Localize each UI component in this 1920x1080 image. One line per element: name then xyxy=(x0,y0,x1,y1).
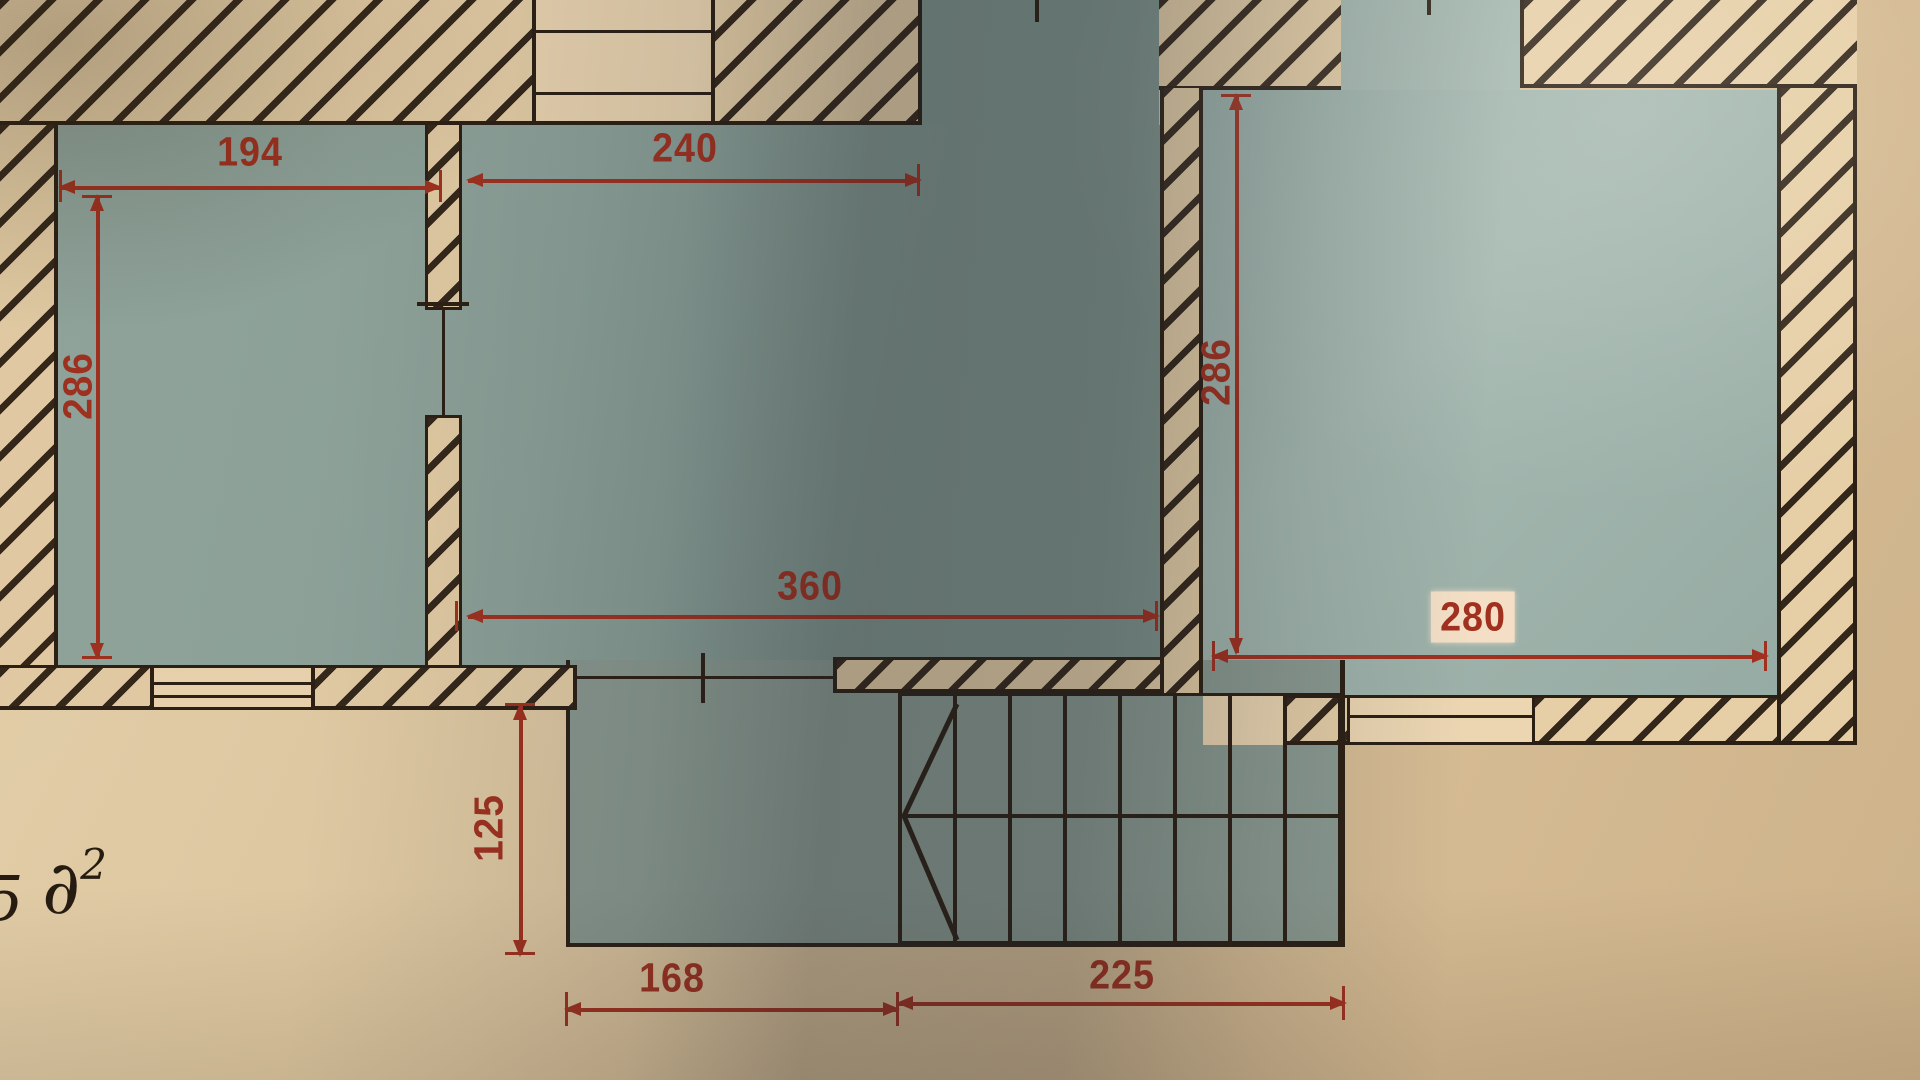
dimension-line-286-left xyxy=(96,196,100,658)
dimension-label-240: 240 xyxy=(652,125,718,172)
dimension-label-360: 360 xyxy=(777,563,843,610)
area-note-superscript: 2 xyxy=(80,840,107,889)
dimension-label-225: 225 xyxy=(1089,952,1155,999)
wall-top xyxy=(0,0,922,125)
area-note-fragment: 5 xyxy=(0,862,23,935)
dimension-tick xyxy=(917,164,920,196)
door-tick-top-middle xyxy=(1035,0,1039,22)
dimension-tick xyxy=(439,170,442,202)
dimension-tick xyxy=(1155,601,1158,631)
door-opening-top-middle xyxy=(922,0,1159,125)
area-note-base: ∂ xyxy=(42,845,80,931)
dimension-tick xyxy=(82,195,112,198)
window-line xyxy=(536,92,711,95)
dimension-line-125 xyxy=(519,705,523,955)
wall-top-right-corner xyxy=(1520,0,1857,88)
dimension-label-168: 168 xyxy=(639,955,705,1002)
dimension-label-194: 194 xyxy=(217,129,283,176)
wall-right xyxy=(1777,88,1857,745)
wall-bottom-middle xyxy=(833,657,1160,693)
window-line xyxy=(1350,715,1532,718)
dimension-label-286-left: 286 xyxy=(55,352,102,420)
door-tick-top-right xyxy=(1427,0,1431,15)
wall-bottom-right-b xyxy=(1535,695,1777,745)
floor-plan-photo: 194 240 286 286 360 280 125 168 225 5 ∂2 xyxy=(0,0,1920,1080)
dimension-tick xyxy=(505,952,535,955)
dimension-label-286-middle: 286 xyxy=(1193,338,1240,406)
area-note: ∂2 xyxy=(42,840,107,931)
dimension-line-225 xyxy=(898,1002,1345,1006)
door-tick-bottom-middle xyxy=(701,653,705,703)
dimension-tick xyxy=(82,656,112,659)
dimension-label-125: 125 xyxy=(466,794,513,862)
dimension-line-240 xyxy=(468,179,920,183)
staircase xyxy=(898,693,1345,945)
dimension-label-280: 280 xyxy=(1431,592,1515,643)
dimension-tick xyxy=(1221,94,1251,97)
window-bottom-left-wall xyxy=(150,668,315,707)
dimension-tick xyxy=(505,703,535,706)
dimension-line-194 xyxy=(60,186,440,190)
window-line xyxy=(536,30,711,33)
window-bottom-right-wall xyxy=(1347,695,1535,745)
wall-top-right-room xyxy=(1159,0,1341,90)
door-tick-partition xyxy=(417,302,469,306)
door-opening-line-partition xyxy=(442,310,445,415)
dimension-line-168 xyxy=(566,1008,898,1012)
opening-line-bottom-middle xyxy=(577,676,833,679)
room-left-and-middle xyxy=(58,125,1160,667)
window-line xyxy=(154,682,311,685)
window-line xyxy=(154,695,311,698)
dimension-tick xyxy=(565,992,568,1026)
dimension-tick xyxy=(1212,641,1215,671)
dimension-tick xyxy=(1342,986,1345,1020)
window-top-wall xyxy=(532,0,715,121)
dimension-tick xyxy=(896,992,899,1026)
staircase-break-line xyxy=(902,696,1349,948)
dimension-line-360 xyxy=(468,615,1158,619)
wall-left xyxy=(0,125,58,667)
wall-partition-stub-upper xyxy=(425,125,462,310)
dimension-tick xyxy=(455,601,458,631)
dimension-tick xyxy=(1764,641,1767,671)
dimension-tick xyxy=(59,170,62,202)
dimension-line-280 xyxy=(1213,655,1767,659)
